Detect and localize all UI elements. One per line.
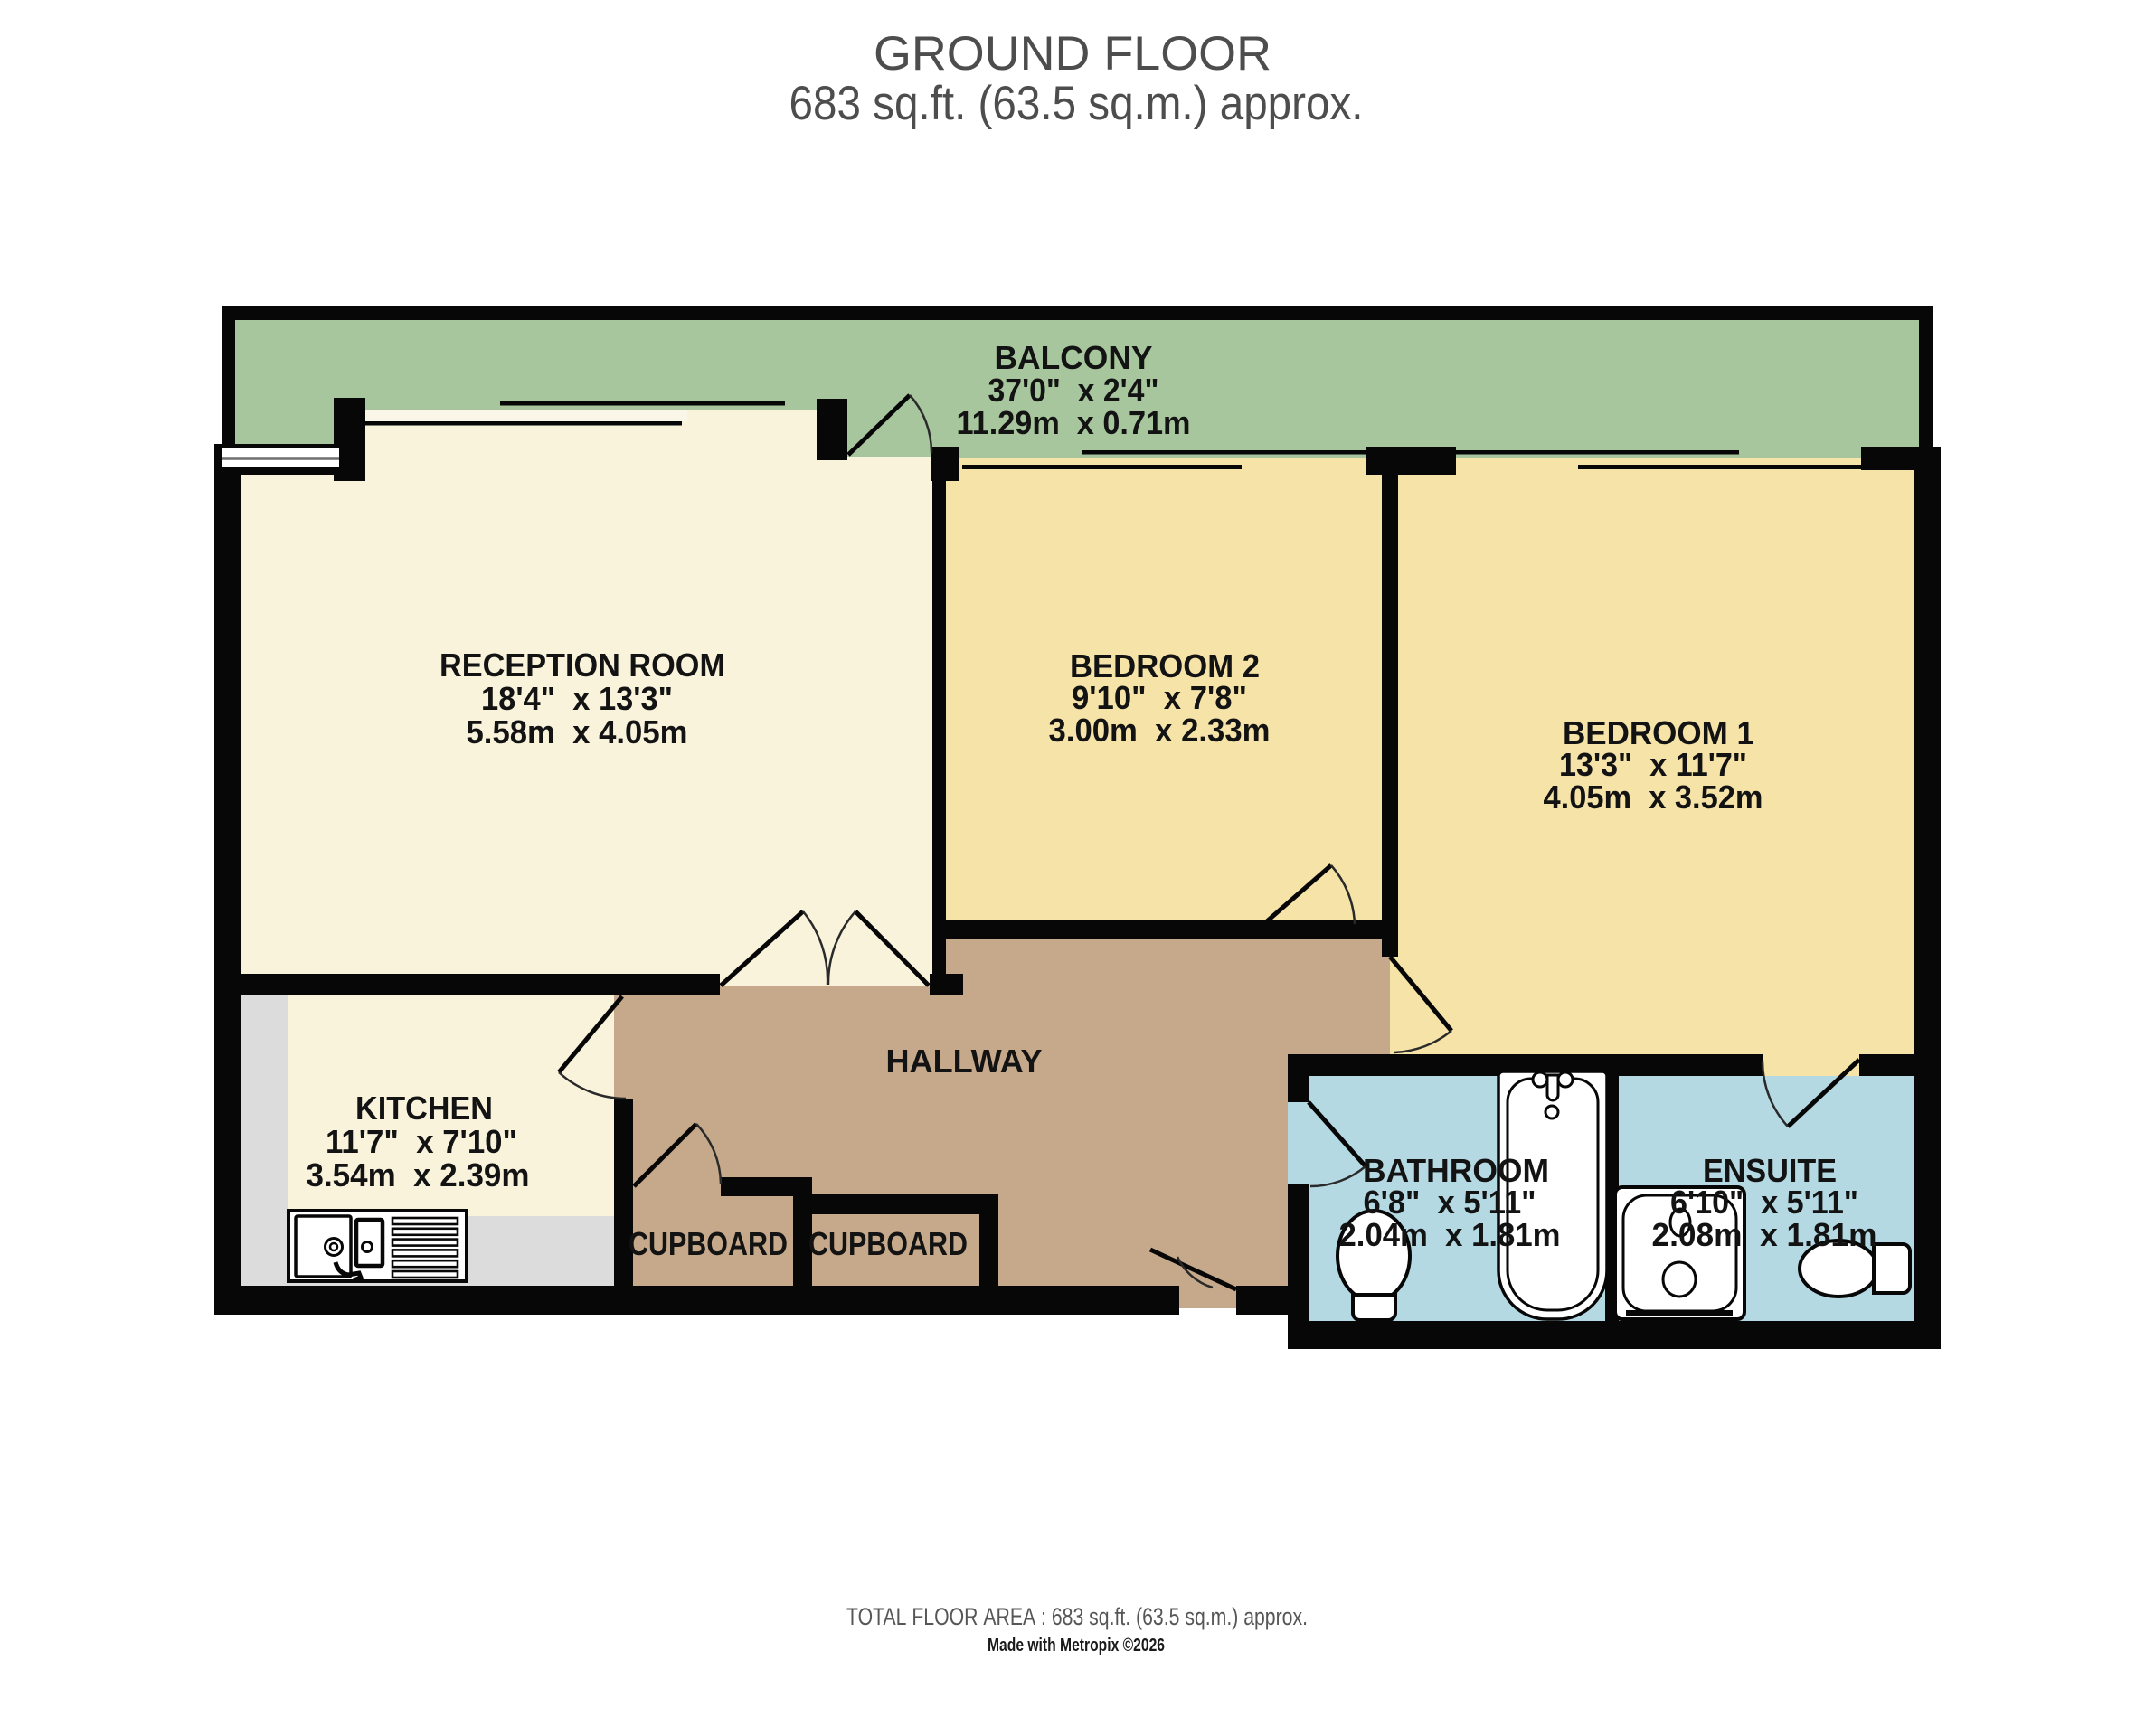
svg-text:TOTAL FLOOR AREA : 683 sq.ft.: TOTAL FLOOR AREA : 683 sq.ft. (63.5 sq.m…	[846, 1603, 1308, 1630]
svg-text:HALLWAY: HALLWAY	[886, 1043, 1043, 1080]
svg-text:2.04m x 1.81m: 2.04m x 1.81m	[1339, 1216, 1561, 1253]
svg-text:Made with Metropix ©2026: Made with Metropix ©2026	[988, 1636, 1165, 1656]
svg-text:683 sq.ft. (63.5 sq.m.) approx: 683 sq.ft. (63.5 sq.m.) approx.	[789, 77, 1364, 130]
svg-text:2.08m x 1.81m: 2.08m x 1.81m	[1652, 1216, 1877, 1253]
svg-text:CUPBOARD: CUPBOARD	[808, 1225, 968, 1262]
svg-text:18'4" x 13'3": 18'4" x 13'3"	[481, 680, 673, 717]
svg-text:9'10" x 7'8": 9'10" x 7'8"	[1072, 679, 1247, 716]
svg-text:37'0" x 2'4": 37'0" x 2'4"	[988, 372, 1159, 409]
svg-text:11.29m x 0.71m: 11.29m x 0.71m	[957, 404, 1191, 441]
svg-text:13'3" x 11'7": 13'3" x 11'7"	[1559, 746, 1747, 783]
svg-text:KITCHEN: KITCHEN	[355, 1090, 493, 1127]
svg-text:6'8" x 5'11": 6'8" x 5'11"	[1364, 1184, 1536, 1221]
svg-text:3.54m x 2.39m: 3.54m x 2.39m	[307, 1156, 530, 1193]
svg-text:CUPBOARD: CUPBOARD	[629, 1225, 788, 1262]
svg-text:3.00m x 2.33m: 3.00m x 2.33m	[1049, 712, 1271, 749]
svg-text:4.05m x 3.52m: 4.05m x 3.52m	[1544, 778, 1763, 816]
svg-text:5.58m x 4.05m: 5.58m x 4.05m	[467, 713, 688, 750]
svg-text:GROUND FLOOR: GROUND FLOOR	[874, 27, 1271, 80]
svg-text:RECEPTION ROOM: RECEPTION ROOM	[440, 646, 725, 684]
svg-text:6'10" x 5'11": 6'10" x 5'11"	[1670, 1184, 1858, 1221]
svg-text:BALCONY: BALCONY	[995, 339, 1153, 376]
svg-text:11'7" x 7'10": 11'7" x 7'10"	[326, 1123, 517, 1160]
